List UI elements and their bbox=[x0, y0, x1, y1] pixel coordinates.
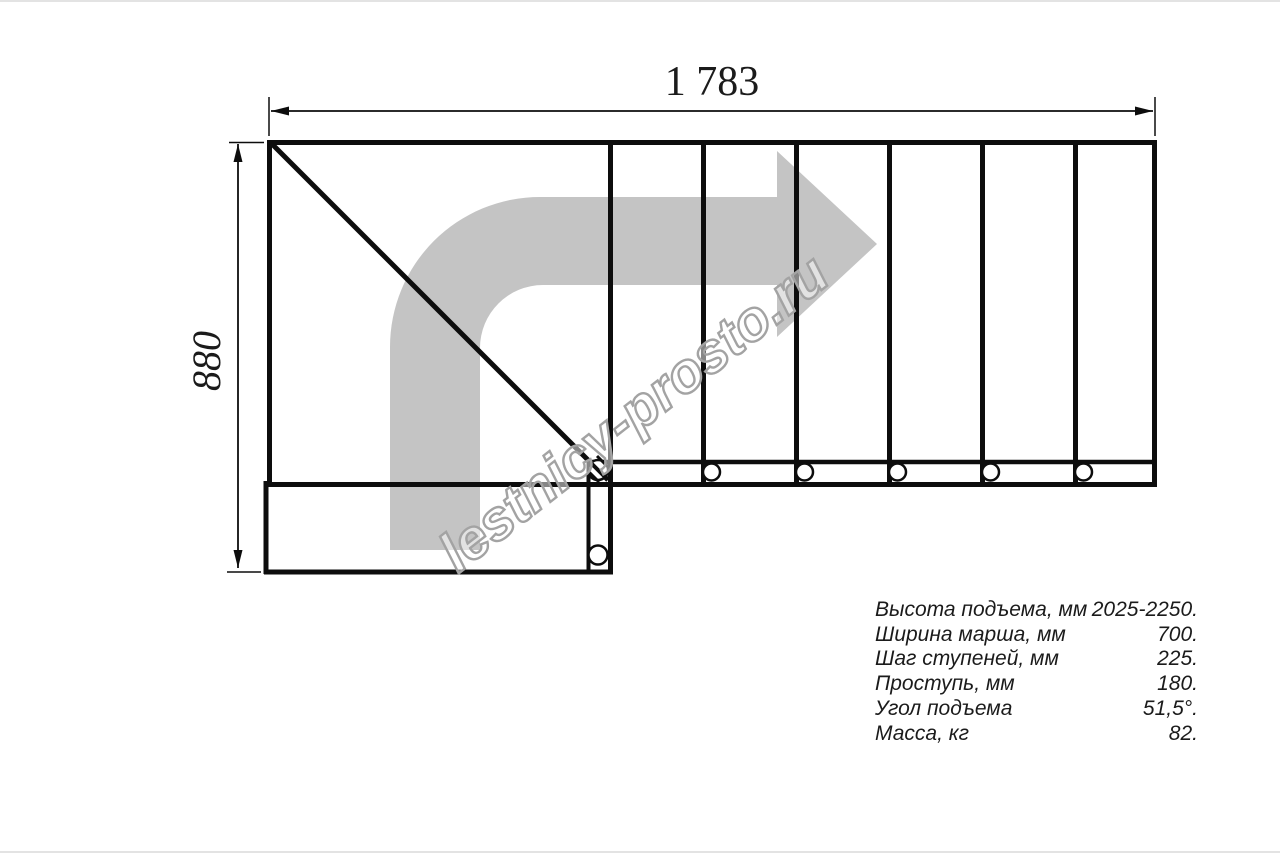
baluster-circle bbox=[982, 464, 999, 481]
left-dimension-label: 880 bbox=[186, 301, 228, 421]
dimension-arrow-left bbox=[271, 107, 289, 116]
spec-value: 51,5°. bbox=[1143, 697, 1198, 722]
spec-row-flight-width: Ширина марша, мм 700. bbox=[875, 623, 1198, 648]
baluster-circle bbox=[889, 464, 906, 481]
spec-row-step-pitch: Шаг ступеней, мм 225. bbox=[875, 647, 1198, 672]
dimension-arrow-top bbox=[234, 144, 243, 162]
dimension-arrow-bottom bbox=[234, 550, 243, 568]
dimension-arrow-right bbox=[1135, 107, 1153, 116]
spec-label: Масса, кг bbox=[875, 722, 969, 747]
stair-drawing-canvas: lestnicy-prosto.ru 1 783 880 Высота подъ… bbox=[0, 0, 1280, 853]
spec-value: 700. bbox=[1157, 623, 1198, 648]
spec-row-tread: Проступь, мм 180. bbox=[875, 672, 1198, 697]
spec-label: Ширина марша, мм bbox=[875, 623, 1066, 648]
spec-label: Шаг ступеней, мм bbox=[875, 647, 1059, 672]
left-dimension bbox=[227, 143, 264, 573]
spec-label: Угол подъема bbox=[875, 697, 1012, 722]
spec-value: 2025-2250. bbox=[1092, 598, 1198, 623]
spec-row-mass: Масса, кг 82. bbox=[875, 722, 1198, 747]
spec-value: 225. bbox=[1157, 647, 1198, 672]
top-dimension-label: 1 783 bbox=[612, 58, 812, 106]
specs-table: Высота подъема, мм 2025-2250. Ширина мар… bbox=[875, 598, 1198, 746]
baluster-circle bbox=[1075, 464, 1092, 481]
spec-label: Высота подъема, мм bbox=[875, 598, 1087, 623]
baluster-circle bbox=[589, 546, 608, 565]
baluster-circle bbox=[796, 464, 813, 481]
direction-arrow bbox=[390, 151, 877, 550]
spec-value: 180. bbox=[1157, 672, 1198, 697]
spec-value: 82. bbox=[1169, 722, 1198, 747]
baluster-circles bbox=[589, 464, 1093, 565]
spec-label: Проступь, мм bbox=[875, 672, 1015, 697]
spec-row-height: Высота подъема, мм 2025-2250. bbox=[875, 598, 1198, 623]
baluster-circle bbox=[703, 464, 720, 481]
spec-row-angle: Угол подъема 51,5°. bbox=[875, 697, 1198, 722]
